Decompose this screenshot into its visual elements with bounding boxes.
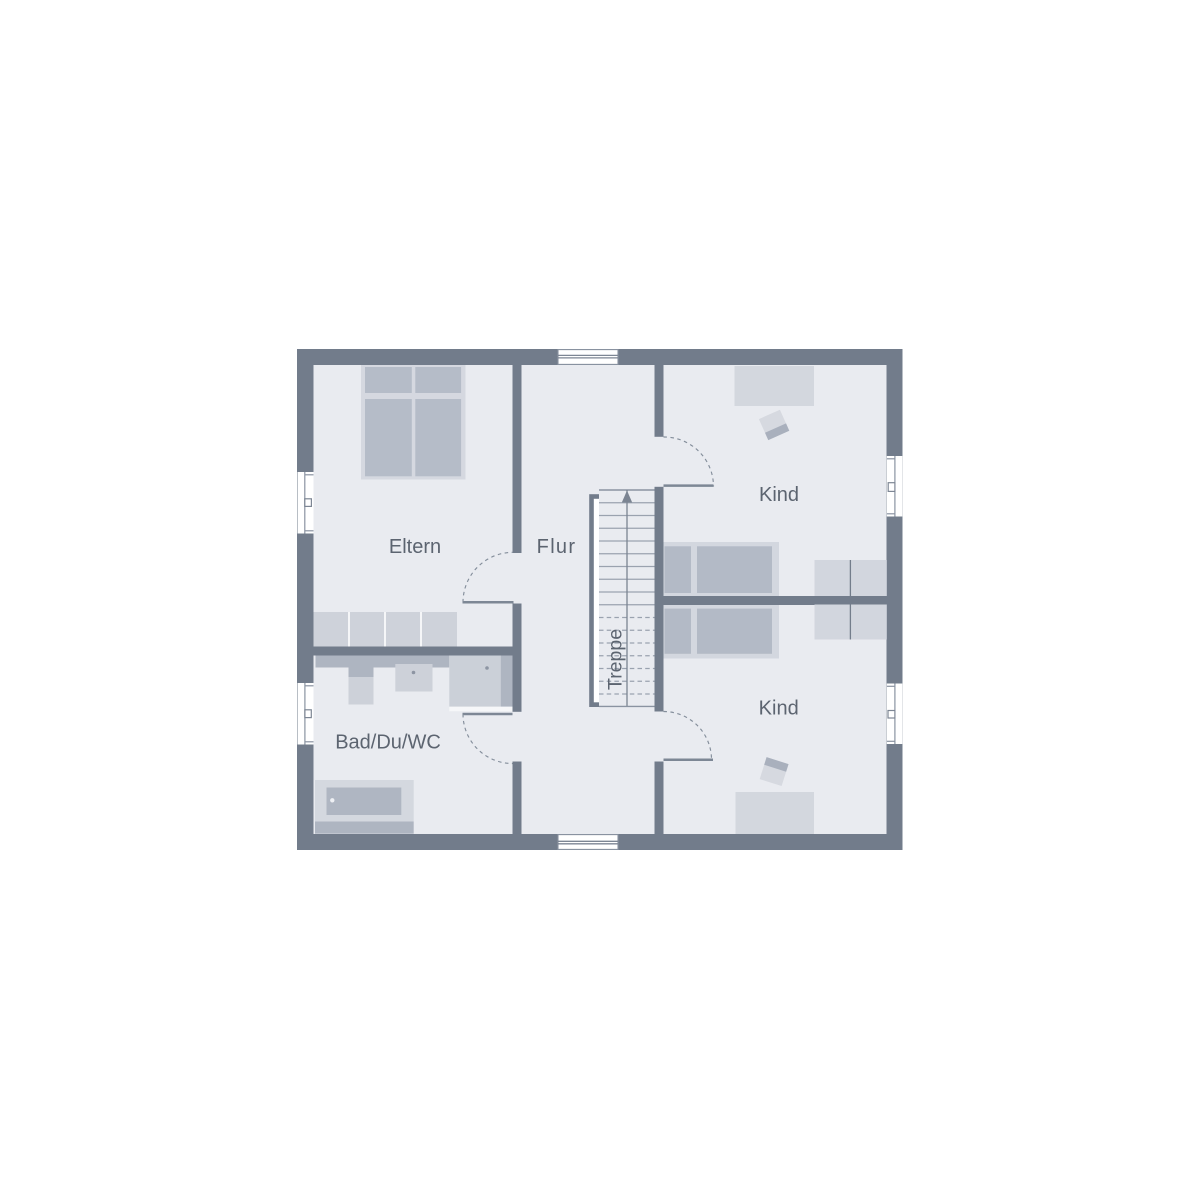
svg-text:Kind: Kind xyxy=(759,484,799,506)
svg-text:Treppe: Treppe xyxy=(605,629,627,690)
svg-text:Kind: Kind xyxy=(759,698,799,720)
svg-text:Bad/Du/WC: Bad/Du/WC xyxy=(335,732,441,754)
svg-text:Flur: Flur xyxy=(537,536,577,558)
svg-text:Eltern: Eltern xyxy=(389,536,441,558)
